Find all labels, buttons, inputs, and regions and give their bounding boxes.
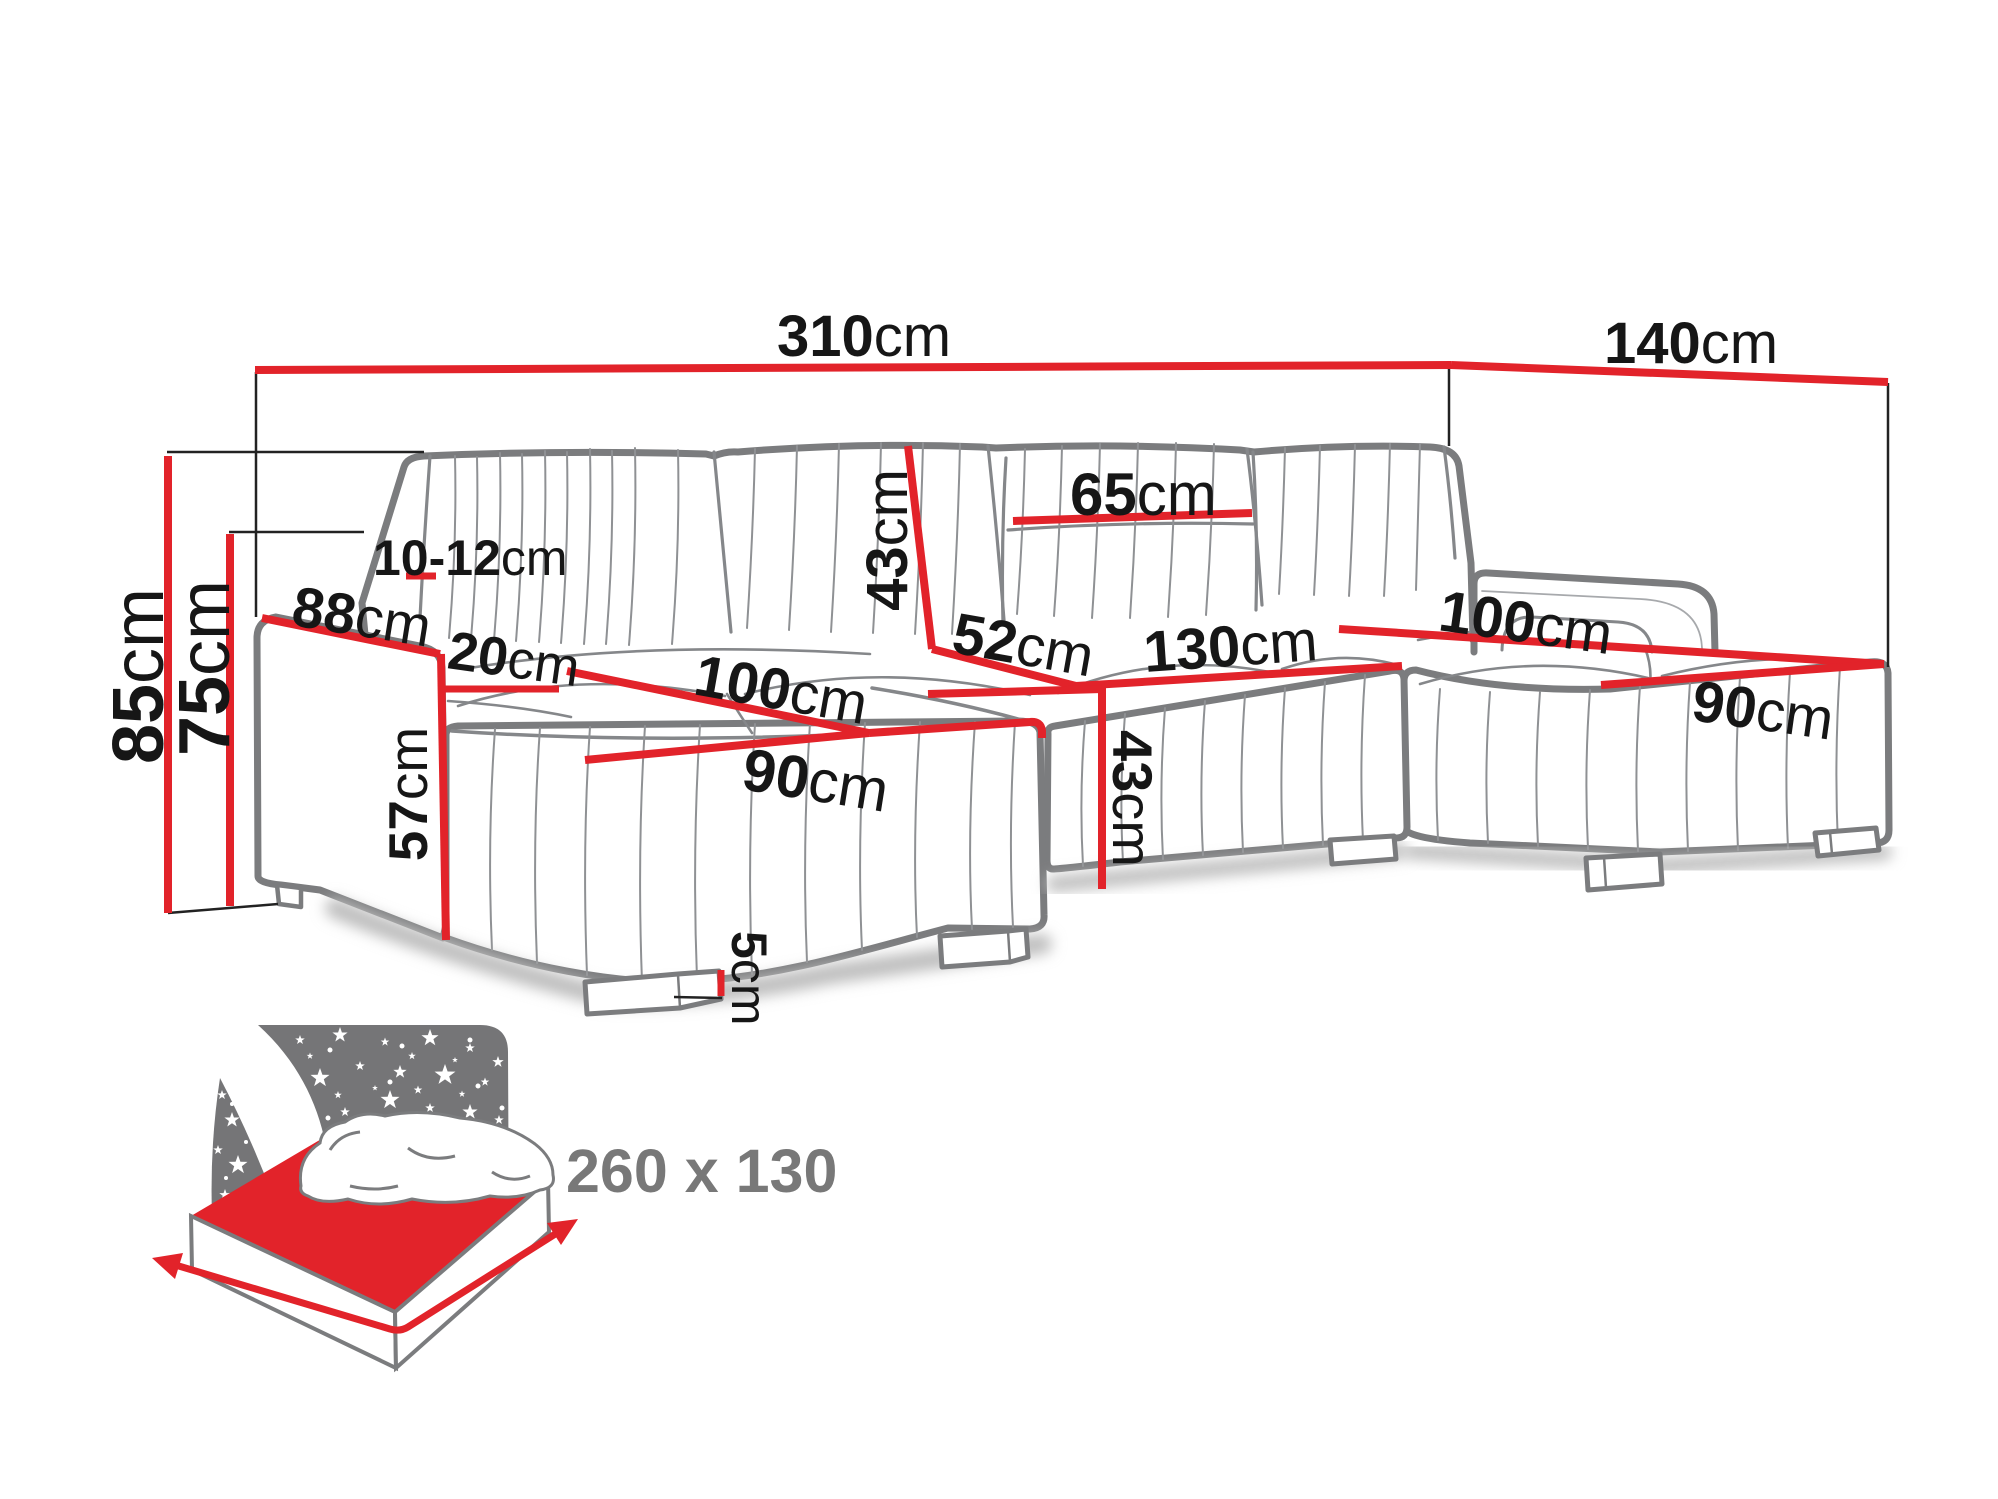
svg-text:57cm: 57cm xyxy=(377,727,439,862)
svg-text:43cm: 43cm xyxy=(1101,730,1164,867)
svg-text:65cm: 65cm xyxy=(1070,461,1217,528)
svg-text:140cm: 140cm xyxy=(1604,311,1778,376)
svg-text:75cm: 75cm xyxy=(165,580,245,756)
svg-text:10-12cm: 10-12cm xyxy=(373,530,568,586)
svg-text:130cm: 130cm xyxy=(1141,608,1319,685)
svg-text:5cm: 5cm xyxy=(721,931,777,1025)
svg-text:260 x 130: 260 x 130 xyxy=(566,1137,837,1205)
svg-text:43cm: 43cm xyxy=(855,469,920,611)
svg-text:310cm: 310cm xyxy=(777,304,951,369)
